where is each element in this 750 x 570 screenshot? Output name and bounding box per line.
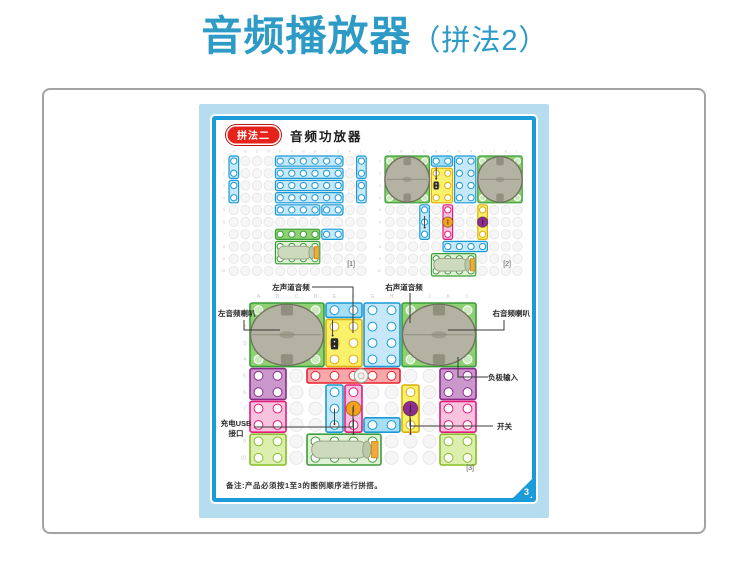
svg-text:10: 10 bbox=[240, 456, 246, 462]
figure-3-diagram: ABCDEFGHIJKL12345678910 左声道音频 右声道音频 左音频喇… bbox=[216, 277, 532, 479]
assembly-note: 备注:产品必须按1至3的图例顺序进行拼搭。 bbox=[226, 480, 382, 491]
svg-text:1: 1 bbox=[223, 159, 225, 163]
page-title-main: 音频播放器 bbox=[201, 13, 411, 59]
svg-text:J: J bbox=[493, 150, 495, 154]
svg-text:3: 3 bbox=[223, 184, 225, 188]
svg-text:J: J bbox=[428, 294, 431, 300]
svg-text:L: L bbox=[360, 150, 362, 154]
svg-text:8: 8 bbox=[223, 245, 225, 249]
svg-text:D: D bbox=[423, 150, 426, 154]
manual-header: 拼法二 音频功放器 bbox=[226, 125, 363, 145]
svg-text:A: A bbox=[233, 150, 236, 154]
svg-text:E: E bbox=[435, 150, 438, 154]
label-right-channel: 右声道音频 bbox=[384, 282, 423, 292]
svg-text:A: A bbox=[257, 294, 261, 300]
svg-text:7: 7 bbox=[243, 406, 246, 412]
svg-text:C: C bbox=[295, 294, 299, 300]
svg-text:F: F bbox=[447, 150, 450, 154]
label-switch: 开关 bbox=[497, 421, 512, 431]
svg-text:6: 6 bbox=[223, 220, 225, 224]
screenshot-root: 音频播放器（拼法2） 拼法二 音频功放器 ABCDEFGHIJKL1234567… bbox=[0, 0, 750, 570]
manual-title: 音频功放器 bbox=[290, 126, 363, 145]
svg-text:G: G bbox=[302, 150, 305, 154]
svg-text:9: 9 bbox=[223, 257, 225, 261]
svg-text:D: D bbox=[267, 150, 270, 154]
page-number: 3 bbox=[524, 487, 529, 497]
svg-text:L: L bbox=[466, 294, 469, 300]
label-usb-line2: 接口 bbox=[229, 428, 244, 438]
svg-text:E: E bbox=[279, 150, 282, 154]
svg-text:K: K bbox=[349, 150, 352, 154]
label-negative-input: 负极输入 bbox=[488, 372, 518, 382]
manual-page-inner: 拼法二 音频功放器 ABCDEFGHIJKL12345678910 [1] AB… bbox=[212, 116, 536, 502]
svg-text:I: I bbox=[326, 150, 327, 154]
svg-text:9: 9 bbox=[379, 257, 381, 261]
svg-text:4: 4 bbox=[243, 357, 246, 363]
page-title: 音频播放器（拼法2） bbox=[0, 2, 750, 62]
svg-text:K: K bbox=[505, 150, 508, 154]
svg-text:9: 9 bbox=[243, 439, 246, 445]
svg-text:H: H bbox=[390, 294, 394, 300]
svg-text:B: B bbox=[276, 294, 280, 300]
svg-text:5: 5 bbox=[243, 374, 246, 380]
svg-text:3: 3 bbox=[379, 184, 381, 188]
svg-text:4: 4 bbox=[223, 196, 225, 200]
svg-text:G: G bbox=[371, 294, 375, 300]
page-corner-tab bbox=[513, 479, 532, 498]
svg-text:G: G bbox=[458, 150, 461, 154]
svg-text:K: K bbox=[447, 294, 451, 300]
svg-text:10: 10 bbox=[377, 269, 381, 273]
svg-text:7: 7 bbox=[223, 233, 225, 237]
page-title-sub: （拼法2） bbox=[411, 25, 548, 57]
svg-text:B: B bbox=[400, 150, 403, 154]
svg-text:5: 5 bbox=[379, 208, 381, 212]
svg-text:A: A bbox=[389, 150, 392, 154]
svg-text:2: 2 bbox=[223, 172, 225, 176]
product-image-card: 拼法二 音频功放器 ABCDEFGHIJKL12345678910 [1] AB… bbox=[42, 88, 706, 534]
svg-text:C: C bbox=[256, 150, 259, 154]
svg-text:2: 2 bbox=[379, 172, 381, 176]
label-right-speaker: 右音频喇叭 bbox=[492, 308, 531, 318]
svg-text:F: F bbox=[291, 150, 294, 154]
svg-text:10: 10 bbox=[221, 269, 225, 273]
figure-3-caption: [3] bbox=[466, 465, 474, 472]
svg-text:8: 8 bbox=[379, 245, 381, 249]
svg-text:B: B bbox=[244, 150, 247, 154]
svg-text:C: C bbox=[412, 150, 415, 154]
svg-text:J: J bbox=[337, 150, 339, 154]
svg-text:4: 4 bbox=[379, 196, 381, 200]
figure-1-caption: [1] bbox=[347, 261, 355, 268]
manual-page: 拼法二 音频功放器 ABCDEFGHIJKL12345678910 [1] AB… bbox=[199, 104, 549, 518]
figure-2-diagram: ABCDEFGHIJKL12345678910 [2] bbox=[377, 147, 527, 281]
svg-text:7: 7 bbox=[379, 233, 381, 237]
svg-text:I: I bbox=[482, 150, 483, 154]
svg-text:6: 6 bbox=[243, 390, 246, 396]
svg-text:H: H bbox=[314, 150, 317, 154]
label-left-speaker: 左音频喇叭 bbox=[217, 308, 256, 318]
svg-text:H: H bbox=[470, 150, 473, 154]
svg-text:D: D bbox=[314, 294, 318, 300]
svg-text:E: E bbox=[333, 294, 337, 300]
svg-text:3: 3 bbox=[243, 341, 246, 347]
svg-text:5: 5 bbox=[223, 208, 225, 212]
label-left-channel: 左声道音频 bbox=[271, 282, 310, 292]
figure-1-diagram: ABCDEFGHIJKL12345678910 [1] bbox=[221, 147, 371, 281]
svg-text:6: 6 bbox=[379, 220, 381, 224]
method-badge: 拼法二 bbox=[226, 125, 281, 145]
svg-text:L: L bbox=[516, 150, 518, 154]
figure-2-caption: [2] bbox=[503, 261, 511, 268]
svg-text:1: 1 bbox=[379, 159, 381, 163]
label-usb-line1: 充电USB bbox=[221, 418, 252, 428]
